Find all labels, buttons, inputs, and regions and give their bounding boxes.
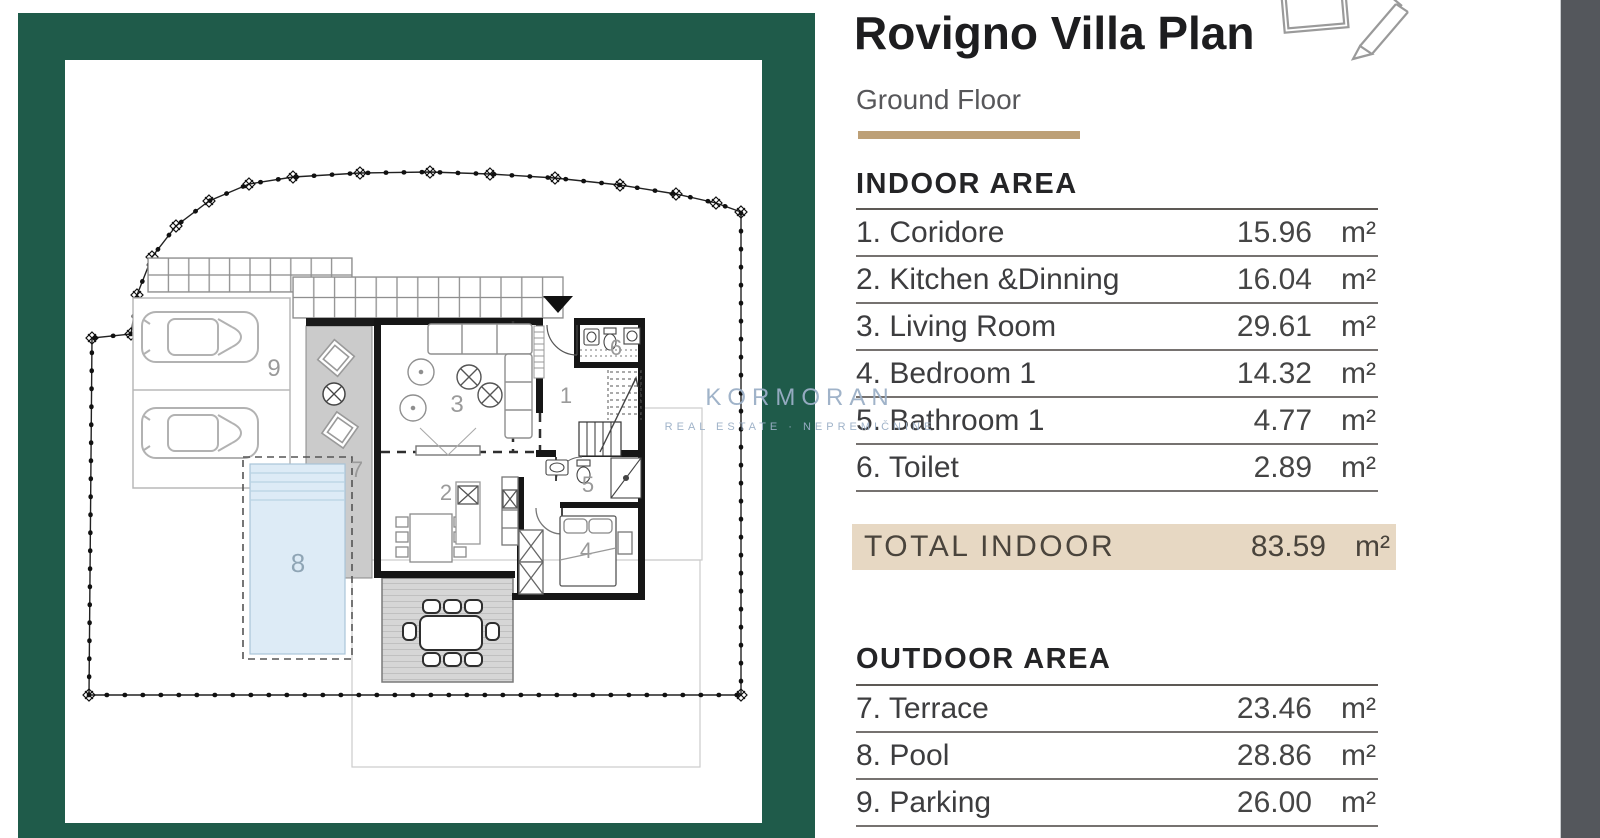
room-label-kitchen: 2	[440, 480, 452, 505]
room-area-value: 15.96	[1216, 216, 1312, 250]
total-value: 83.59	[1230, 530, 1326, 564]
total-indoor-row: TOTAL INDOOR 83.59 m²	[852, 524, 1396, 570]
room-label-terrace: 7	[351, 457, 363, 482]
room-name: 3. Living Room	[856, 310, 1216, 344]
room-name: 5. Bathroom 1	[856, 404, 1216, 438]
area-unit: m²	[1328, 739, 1376, 773]
table-row: 8. Pool 28.86 m²	[856, 733, 1378, 780]
edit-icon[interactable]	[1272, 0, 1442, 64]
area-unit: m²	[1328, 451, 1376, 485]
page-subtitle: Ground Floor	[856, 84, 1021, 116]
room-name: 6. Toilet	[856, 451, 1216, 485]
room-area-value: 16.04	[1216, 263, 1312, 297]
area-unit: m²	[1328, 263, 1376, 297]
area-unit: m²	[1328, 310, 1376, 344]
room-label-living: 3	[450, 391, 463, 418]
table-icon	[323, 383, 345, 405]
room-label-bathroom: 5	[582, 472, 594, 497]
page-title: Rovigno Villa Plan	[854, 6, 1254, 60]
document-page: 1 2 3 4 5 6 7 8 9 Rovigno Villa Plan Gro…	[0, 0, 1600, 838]
table-row: 5. Bathroom 1 4.77 m²	[856, 398, 1378, 445]
outdoor-area-heading: OUTDOOR AREA	[856, 643, 1111, 676]
table-row: 3. Living Room 29.61 m²	[856, 304, 1378, 351]
room-label-corridor: 1	[560, 383, 572, 408]
room-area-value: 2.89	[1216, 451, 1312, 485]
room-name: 2. Kitchen &Dinning	[856, 263, 1216, 297]
table-row: 7. Terrace 23.46 m²	[856, 686, 1378, 733]
hall-closet	[534, 326, 544, 378]
floor-plan: 1 2 3 4 5 6 7 8 9	[0, 0, 815, 838]
outdoor-area-table: 7. Terrace 23.46 m² 8. Pool 28.86 m² 9. …	[856, 684, 1378, 827]
room-name: 8. Pool	[856, 739, 1216, 773]
indoor-area-table: 1. Coridore 15.96 m² 2. Kitchen &Dinning…	[856, 208, 1378, 492]
room-area-value: 29.61	[1216, 310, 1312, 344]
room-area-value: 28.86	[1216, 739, 1312, 773]
room-name: 7. Terrace	[856, 692, 1216, 726]
indoor-area-heading: INDOOR AREA	[856, 168, 1078, 201]
table-row: 4. Bedroom 1 14.32 m²	[856, 351, 1378, 398]
room-area-value: 26.00	[1216, 786, 1312, 820]
area-unit: m²	[1328, 692, 1376, 726]
area-unit: m²	[1328, 216, 1376, 250]
room-area-value: 4.77	[1216, 404, 1312, 438]
room-label-parking: 9	[267, 355, 280, 382]
accent-underline	[858, 131, 1080, 139]
area-unit: m²	[1328, 357, 1376, 391]
living-furniture	[400, 324, 532, 455]
scrollbar-track[interactable]	[1560, 0, 1600, 838]
area-unit: m²	[1342, 530, 1390, 564]
room-name: 4. Bedroom 1	[856, 357, 1216, 391]
table-row: 2. Kitchen &Dinning 16.04 m²	[856, 257, 1378, 304]
room-label-toilet: 6	[610, 335, 622, 360]
table-row: 9. Parking 26.00 m²	[856, 780, 1378, 827]
area-unit: m²	[1328, 786, 1376, 820]
room-name: 1. Coridore	[856, 216, 1216, 250]
kitchen-furniture	[396, 477, 518, 562]
bedroom-furniture	[519, 508, 632, 594]
room-area-value: 14.32	[1216, 357, 1312, 391]
room-area-value: 23.46	[1216, 692, 1312, 726]
table-row: 6. Toilet 2.89 m²	[856, 445, 1378, 492]
room-label-pool: 8	[291, 548, 305, 578]
patio-area	[382, 578, 513, 682]
staircase	[579, 370, 641, 456]
table-row: 1. Coridore 15.96 m²	[856, 210, 1378, 257]
room-name: 9. Parking	[856, 786, 1216, 820]
area-unit: m²	[1328, 404, 1376, 438]
parking-area	[133, 298, 290, 488]
room-label-bedroom: 4	[580, 538, 592, 563]
area-summary-panel: Rovigno Villa Plan Ground Floor INDOOR A…	[868, 0, 1378, 838]
total-label: TOTAL INDOOR	[864, 530, 1230, 564]
